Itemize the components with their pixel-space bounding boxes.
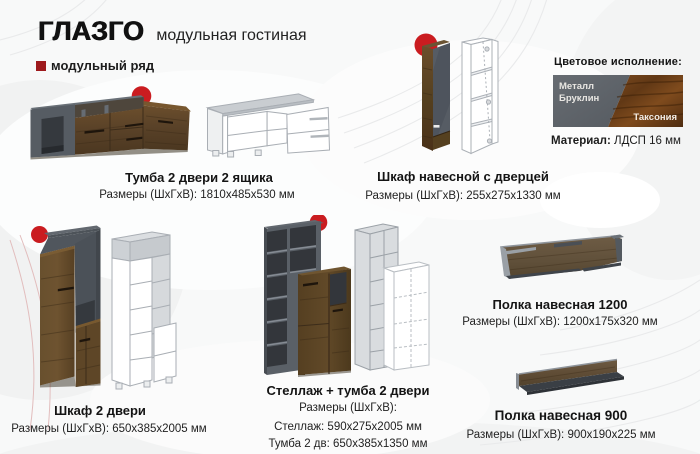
svg-text:Бруклин: Бруклин: [559, 93, 600, 104]
svg-text:Металл: Металл: [559, 81, 594, 92]
svg-text:Таксония: Таксония: [633, 112, 677, 123]
